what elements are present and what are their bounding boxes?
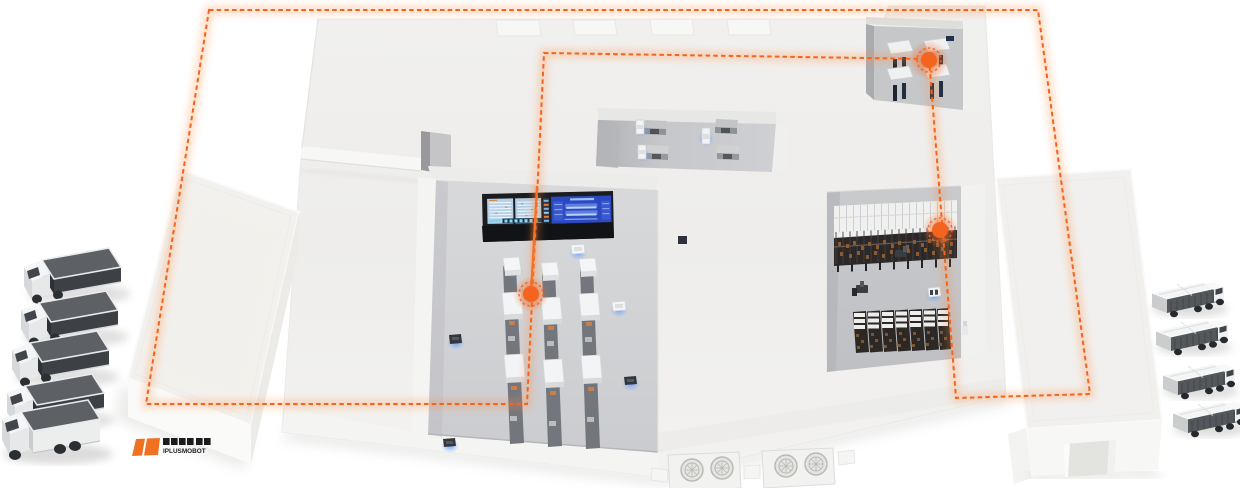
svg-text:IPLUSMOBOT: IPLUSMOBOT (163, 448, 206, 455)
